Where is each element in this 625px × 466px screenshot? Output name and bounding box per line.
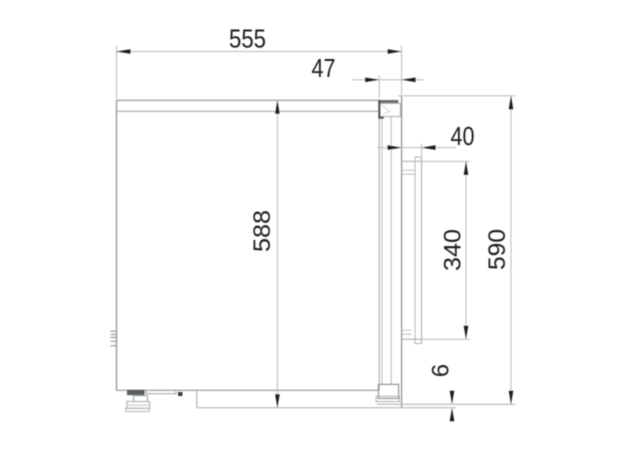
svg-text:47: 47 [312, 53, 336, 83]
svg-text:340: 340 [440, 229, 467, 271]
svg-text:6: 6 [427, 364, 454, 377]
svg-text:588: 588 [249, 210, 276, 252]
svg-text:40: 40 [451, 121, 475, 151]
svg-text:555: 555 [229, 24, 266, 54]
svg-text:590: 590 [484, 229, 511, 270]
